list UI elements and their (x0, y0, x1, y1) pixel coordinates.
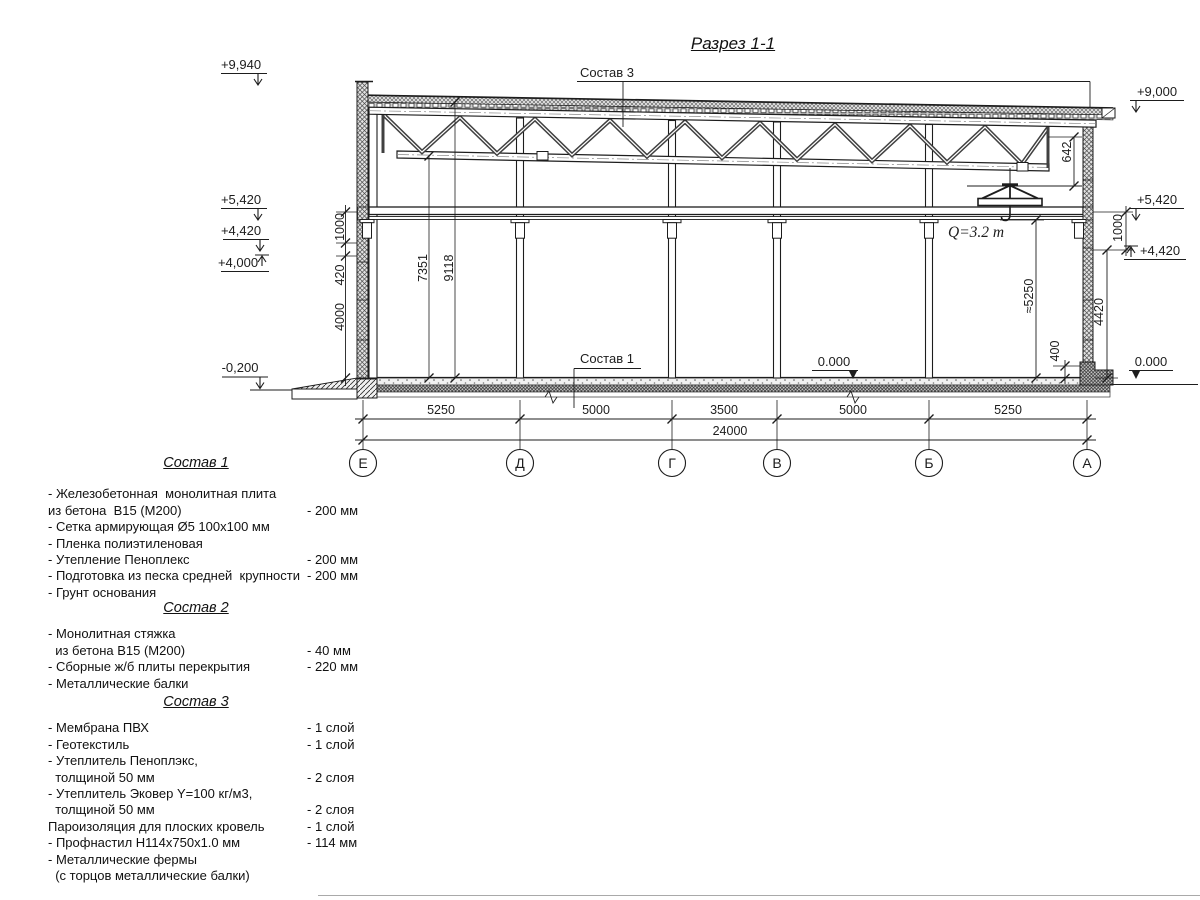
material-name: - Утеплитель Пеноплэкс, (48, 753, 198, 768)
material-thickness: - 1 слой (307, 819, 355, 835)
floor-beam (369, 207, 1083, 215)
right-wall-foundation (1080, 362, 1113, 385)
crane-hoist: Q=3.2 т (948, 168, 1082, 241)
material-name: - Сетка армирующая Ø5 100х100 мм (48, 519, 270, 534)
dim-9118: 9118 (442, 255, 456, 282)
elevation-9940: +9,940 (221, 57, 261, 72)
elevation-9000: +9,000 (1137, 84, 1177, 99)
drawing-page: Разрез 1-1 (0, 0, 1200, 900)
page-edge-line (318, 895, 1200, 896)
list-item: - Пленка полиэтиленовая (48, 536, 380, 552)
left-wall-footing (357, 379, 377, 398)
level-mark-zero-mid: 0.000 (812, 354, 858, 379)
material-name: Пароизоляция для плоских кровель (48, 819, 265, 834)
material-thickness: - 40 мм (307, 643, 351, 659)
list-item: - Профнастил Н114х750х1.0 мм- 114 мм (48, 835, 380, 851)
composition-3-title: Состав 3 (48, 694, 344, 710)
material-thickness: - 200 мм (307, 552, 358, 568)
dim-7351: 7351 (416, 254, 430, 282)
material-name: - Утеплитель Эковер Y=100 кг/м3, (48, 786, 252, 801)
elevation-5420-left: +5,420 (221, 192, 261, 207)
dim-span-2: 5000 (582, 403, 610, 417)
list-item: - Утепление Пеноплекс- 200 мм (48, 552, 380, 568)
column-e (369, 107, 377, 378)
dim-span-3: 3500 (710, 403, 738, 417)
list-item: - Утеплитель Эковер Y=100 кг/м3, (48, 786, 380, 802)
dim-420-left: 420 (333, 265, 347, 286)
list-item: - Геотекстиль- 1 слой (48, 737, 380, 753)
splice-plate (537, 152, 548, 161)
dim-642: 642 (1060, 142, 1074, 163)
list-item: Пароизоляция для плоских кровель- 1 слой (48, 819, 380, 835)
composition-1: Состав 1 - Железобетонная монолитная пли… (48, 455, 380, 601)
axis-d: Д (515, 455, 525, 471)
axis-v: В (772, 455, 781, 471)
composition-2: Состав 2 - Монолитная стяжка из бетона В… (48, 600, 380, 692)
material-name: - Геотекстиль (48, 737, 129, 752)
axis-b: Б (924, 455, 933, 471)
material-thickness: - 200 мм (307, 503, 358, 519)
elevation-minus-0200: -0,200 (222, 360, 259, 375)
dim-span-4: 5000 (839, 403, 867, 417)
list-item: (с торцов металлические балки) (48, 868, 380, 884)
roof-edge-cap (1102, 108, 1115, 118)
roof (368, 95, 1115, 127)
material-thickness: - 114 мм (307, 835, 357, 851)
material-thickness: - 2 слоя (307, 770, 354, 786)
material-thickness: - 1 слой (307, 737, 355, 753)
crane-beam-level (358, 207, 1094, 220)
elevation-4420-left: +4,420 (221, 223, 261, 238)
dimension-chain-left: 1000 420 4000 (333, 205, 357, 386)
material-thickness: - 2 слоя (307, 802, 354, 818)
sostav1-callout-label: Состав 1 (580, 351, 634, 366)
material-name: из бетона В15 (М200) (48, 643, 185, 658)
material-name: толщиной 50 мм (48, 770, 155, 785)
list-item: - Металлические фермы (48, 852, 380, 868)
material-name: - Сборные ж/б плиты перекрытия (48, 659, 250, 674)
dim-span-5: 5250 (994, 403, 1022, 417)
crane-capacity-label: Q=3.2 т (948, 224, 1004, 241)
elevation-4000-left: +4,000 (218, 255, 258, 270)
material-name: - Профнастил Н114х750х1.0 мм (48, 835, 240, 850)
composition-3: Состав 3 - Мембрана ПВХ- 1 слой - Геотек… (48, 694, 380, 884)
material-name: - Металлические балки (48, 676, 188, 691)
sostav3-callout-label: Состав 3 (580, 65, 634, 80)
composition-2-title: Состав 2 (48, 600, 344, 616)
material-thickness: - 220 мм (307, 659, 358, 675)
splice-plate (1017, 163, 1028, 172)
material-name: - Железобетонная монолитная плита (48, 486, 276, 501)
dim-total-span: 24000 (713, 424, 748, 438)
left-apron (250, 378, 357, 399)
list-item: - Сетка армирующая Ø5 100х100 мм (48, 519, 380, 535)
dim-span-1: 5250 (427, 403, 455, 417)
level-zero-mid-label: 0.000 (818, 354, 851, 369)
material-name: - Пленка полиэтиленовая (48, 536, 203, 551)
elevation-4420-right: +4,420 (1140, 243, 1180, 258)
material-name: (с торцов металлические балки) (48, 868, 250, 883)
list-item: - Металлические балки (48, 676, 380, 692)
floor-slab (357, 378, 1110, 404)
axis-bubbles: Е Д Г В Б А (350, 450, 1101, 477)
axis-a: А (1082, 455, 1092, 471)
list-item: из бетона В15 (М200)- 40 мм (48, 643, 380, 659)
list-item: толщиной 50 мм- 2 слоя (48, 802, 380, 818)
list-item: - Монолитная стяжка (48, 626, 380, 642)
material-name: - Монолитная стяжка (48, 626, 176, 641)
list-item: из бетона В15 (М200)- 200 мм (48, 503, 380, 519)
dim-1000-right: 1000 (1111, 214, 1125, 242)
list-item: толщиной 50 мм- 2 слоя (48, 770, 380, 786)
dim-4420: 4420 (1092, 298, 1106, 326)
material-name: - Утепление Пеноплекс (48, 552, 190, 567)
list-item: - Сборные ж/б плиты перекрытия- 220 мм (48, 659, 380, 675)
material-thickness: - 200 мм (307, 568, 358, 584)
dim-hook-5250: ≈5250 (1022, 279, 1036, 314)
list-item: - Подготовка из песка средней крупности-… (48, 568, 380, 584)
list-item: - Грунт основания (48, 585, 380, 601)
material-name: - Грунт основания (48, 585, 156, 600)
axis-g: Г (668, 455, 676, 471)
crane-trolley (978, 199, 1042, 206)
material-name: толщиной 50 мм (48, 802, 155, 817)
elevation-5420-right: +5,420 (1137, 192, 1177, 207)
material-name: - Мембрана ПВХ (48, 720, 149, 735)
elevation-marks-right: +9,000 +5,420 +4,420 (1124, 84, 1186, 260)
material-thickness: - 1 слой (307, 720, 355, 736)
list-item: - Утеплитель Пеноплэкс, (48, 753, 380, 769)
level-mark-zero-right: 0.000 (1129, 354, 1173, 379)
list-item: - Железобетонная монолитная плита (48, 486, 380, 502)
dimension-chain-bottom: 5250 5000 3500 5000 5250 24000 (355, 400, 1096, 449)
material-name: из бетона В15 (М200) (48, 503, 182, 518)
list-item: - Мембрана ПВХ- 1 слой (48, 720, 380, 736)
elevation-marks-left: +9,940 +5,420 +4,420 +4,000 -0,200 (218, 57, 269, 389)
material-name: - Металлические фермы (48, 852, 197, 867)
dim-4000-left: 4000 (333, 303, 347, 331)
level-zero-right-label: 0.000 (1135, 354, 1168, 369)
dim-400: 400 (1048, 341, 1062, 362)
composition-1-title: Состав 1 (48, 455, 344, 471)
dim-1000-left: 1000 (333, 213, 347, 241)
material-name: - Подготовка из песка средней крупности (48, 568, 300, 583)
columns (369, 107, 933, 378)
